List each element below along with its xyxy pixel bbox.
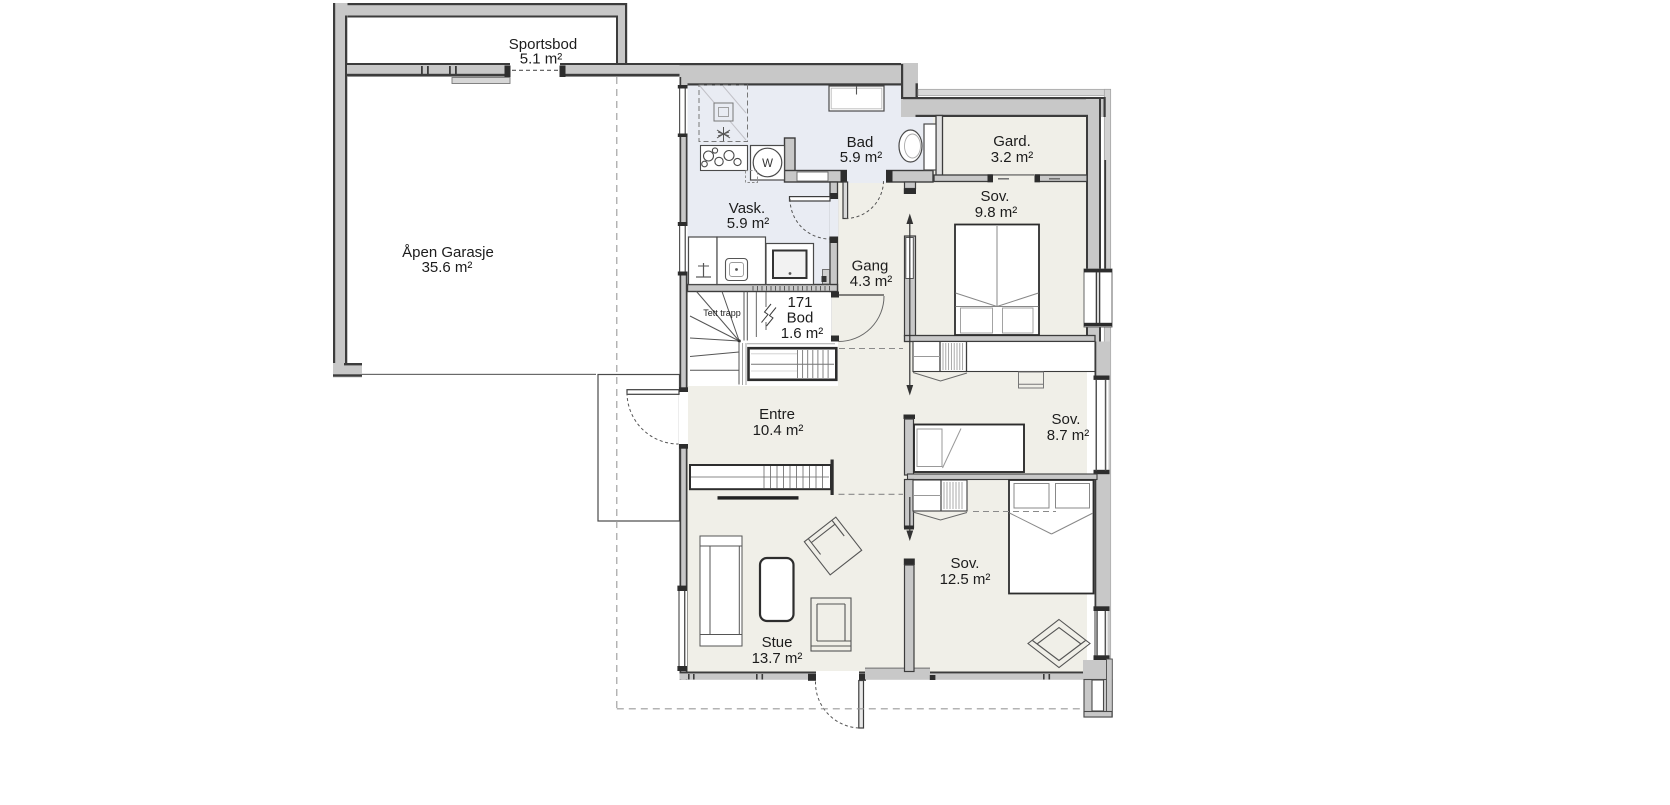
svg-text:10.4 m²: 10.4 m² <box>753 422 804 439</box>
svg-text:5.9 m²: 5.9 m² <box>727 215 770 232</box>
svg-text:Entre: Entre <box>759 406 795 423</box>
svg-text:8.7 m²: 8.7 m² <box>1047 427 1090 444</box>
svg-text:171: 171 <box>787 294 812 311</box>
svg-text:Stue: Stue <box>762 634 793 651</box>
svg-text:5.9 m²: 5.9 m² <box>840 149 883 166</box>
svg-text:3.2 m²: 3.2 m² <box>991 149 1034 166</box>
svg-text:9.8 m²: 9.8 m² <box>975 204 1018 221</box>
svg-text:Sov.: Sov. <box>1052 411 1081 428</box>
svg-text:13.7 m²: 13.7 m² <box>752 650 803 667</box>
svg-text:5.1 m²: 5.1 m² <box>520 51 563 68</box>
svg-text:12.5 m²: 12.5 m² <box>940 571 991 588</box>
svg-text:Gang: Gang <box>852 258 889 275</box>
svg-text:Sov.: Sov. <box>981 188 1010 205</box>
svg-text:Gard.: Gard. <box>993 133 1031 150</box>
svg-text:Sov.: Sov. <box>951 555 980 572</box>
svg-text:Tett trapp: Tett trapp <box>703 308 741 318</box>
svg-text:35.6 m²: 35.6 m² <box>422 259 473 276</box>
svg-text:1.6 m²: 1.6 m² <box>781 325 824 342</box>
svg-text:4.3 m²: 4.3 m² <box>850 273 893 290</box>
svg-text:Bod: Bod <box>787 310 814 327</box>
svg-text:W: W <box>762 158 773 170</box>
